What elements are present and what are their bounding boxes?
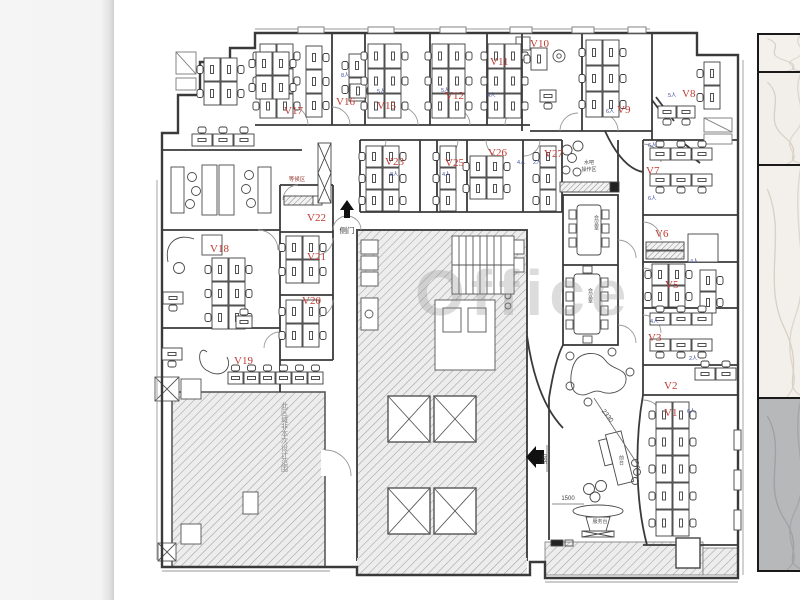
room-label-V3: V3 [648, 332, 662, 344]
annotation-text: 操作区 [581, 166, 596, 173]
annotation-text: 会议室 [587, 287, 593, 303]
annotation-text: 2330 [600, 408, 615, 424]
capacity-label: 4人 [487, 92, 496, 99]
room-label-V21: V21 [307, 251, 326, 263]
room-label-V18: V18 [210, 243, 229, 255]
annotation-text: 会议室 [593, 214, 599, 230]
room-label-V8: V8 [682, 88, 696, 100]
room-label-V6: V6 [655, 228, 669, 240]
texture-squiggle [759, 73, 800, 164]
annotation-text: 服务台 [592, 518, 607, 525]
thumbnail-panel [757, 33, 800, 572]
watermark-text: Office [415, 257, 632, 329]
main-entry-arrow [526, 446, 544, 468]
room-label-V7: V7 [646, 165, 660, 177]
room-label-V10: V10 [530, 38, 549, 50]
room-label-V23: V23 [385, 156, 404, 168]
capacity-label: 5人 [377, 88, 386, 95]
capacity-label: 4人 [517, 159, 526, 166]
texture-squiggle [759, 399, 800, 570]
capacity-label: 6人 [648, 142, 657, 149]
room-label-V11: V11 [490, 56, 509, 68]
room-label-V2: V2 [664, 380, 677, 392]
capacity-label: 4人 [690, 258, 699, 265]
room-label-V25: V25 [445, 157, 464, 169]
floor-plan-image[interactable]: Office V1V2V3V5V6V7V8V9V10V11V12V15V16V1… [0, 0, 800, 600]
capacity-label: 6人 [606, 108, 615, 115]
capacity-label: 8人 [341, 72, 350, 79]
texture-squiggle [759, 166, 800, 397]
floor-plan-svg: Office V1V2V3V5V6V7V8V9V10V11V12V15V16V1… [0, 0, 800, 600]
annotation-text: 1500 [561, 496, 575, 502]
capacity-label: 5人 [441, 87, 450, 94]
room-label-V20: V20 [302, 295, 321, 307]
room-label-V27: V27 [544, 148, 563, 160]
capacity-label: 4人 [650, 318, 659, 325]
room-label-V1: V1 [664, 407, 677, 419]
annotation-text: 此区域非本次设计范围 [281, 401, 289, 473]
room-label-V19: V19 [234, 355, 253, 367]
room-label-V26: V26 [488, 147, 507, 159]
texture-thumbnail-1[interactable] [757, 33, 800, 73]
texture-squiggle [759, 35, 800, 71]
texture-thumbnail-3[interactable] [757, 164, 800, 399]
side-door-arrow [340, 200, 354, 218]
annotation-text: 侧门 [340, 225, 355, 235]
room-label-V15: V15 [377, 100, 396, 112]
annotation-text: 580 [543, 453, 549, 464]
capacity-label: 2人 [689, 355, 698, 362]
room-label-V16: V16 [336, 96, 355, 108]
capacity-label: 8人 [390, 171, 399, 178]
room-label-V5: V5 [665, 279, 679, 291]
capacity-label: 2人 [533, 159, 542, 166]
annotation-text: 前台 [618, 454, 624, 466]
capacity-label: 6人 [687, 408, 696, 415]
room-label-V22: V22 [307, 212, 326, 224]
viewer-screen: Office V1V2V3V5V6V7V8V9V10V11V12V15V16V1… [0, 0, 800, 600]
annotation-text: 等候区 [289, 175, 306, 183]
texture-thumbnail-4[interactable] [757, 397, 800, 572]
room-label-V17: V17 [284, 105, 303, 117]
capacity-label: 5人 [668, 92, 677, 99]
capacity-label: 4人 [442, 171, 451, 178]
room-label-V9: V9 [617, 104, 631, 116]
texture-thumbnail-2[interactable] [757, 71, 800, 166]
capacity-label: 6人 [648, 195, 657, 202]
annotation-text: 水吧 [584, 159, 594, 166]
left-panel-edge [0, 0, 114, 600]
